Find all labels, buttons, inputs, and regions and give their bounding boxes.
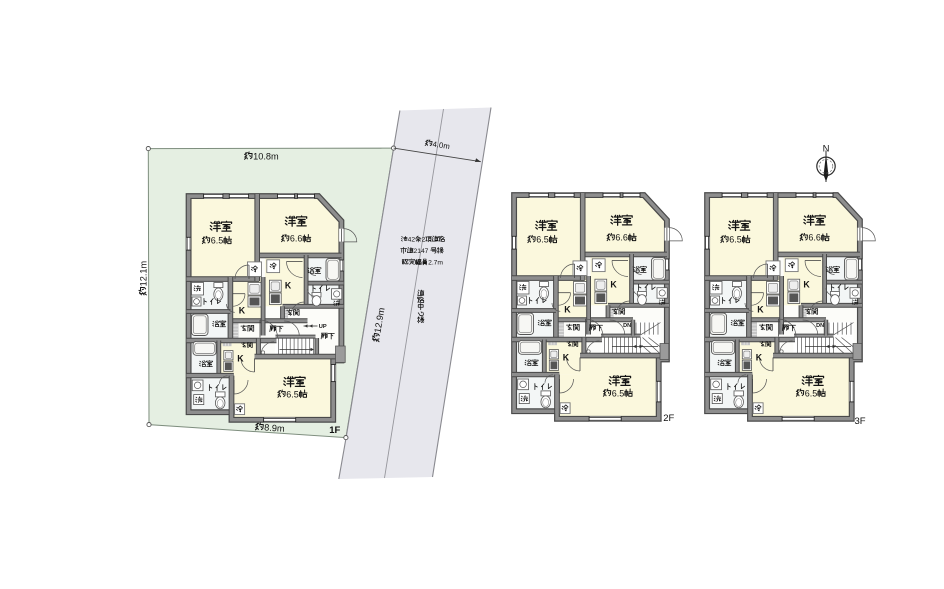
svg-text:12.1m: 12.1m [138, 261, 148, 287]
svg-text:K: K [757, 304, 764, 314]
svg-text:6.5: 6.5 [612, 388, 625, 398]
svg-text:K: K [239, 305, 246, 315]
svg-text:K: K [803, 280, 810, 290]
svg-text:2F: 2F [663, 413, 674, 424]
svg-text:N: N [823, 144, 830, 155]
svg-text:6.6: 6.6 [290, 234, 303, 244]
svg-text:10.8m: 10.8m [253, 151, 279, 161]
svg-text:1F: 1F [329, 425, 340, 436]
svg-text:K: K [237, 353, 244, 363]
svg-text:6.5: 6.5 [286, 389, 299, 399]
svg-text:UP: UP [319, 324, 327, 330]
svg-text:DN: DN [623, 323, 631, 329]
svg-text:6.5: 6.5 [805, 388, 818, 398]
svg-text:2: 2 [422, 236, 426, 243]
svg-text:42: 42 [408, 236, 416, 243]
svg-text:6.5: 6.5 [211, 236, 224, 246]
svg-text:K: K [285, 281, 292, 291]
svg-text:6.6: 6.6 [808, 233, 821, 243]
svg-text:2147: 2147 [414, 248, 429, 255]
svg-text:8.9m: 8.9m [264, 422, 285, 433]
svg-text:3F: 3F [854, 416, 865, 427]
svg-text:2.7m: 2.7m [428, 259, 443, 266]
svg-text:K: K [563, 352, 570, 362]
svg-text:K: K [564, 304, 571, 314]
svg-text:6.5: 6.5 [536, 235, 549, 245]
svg-text:DN: DN [816, 323, 824, 329]
svg-text:K: K [610, 280, 617, 290]
svg-text:6.6: 6.6 [615, 233, 628, 243]
svg-text:K: K [756, 352, 763, 362]
svg-text:6.5: 6.5 [729, 235, 742, 245]
